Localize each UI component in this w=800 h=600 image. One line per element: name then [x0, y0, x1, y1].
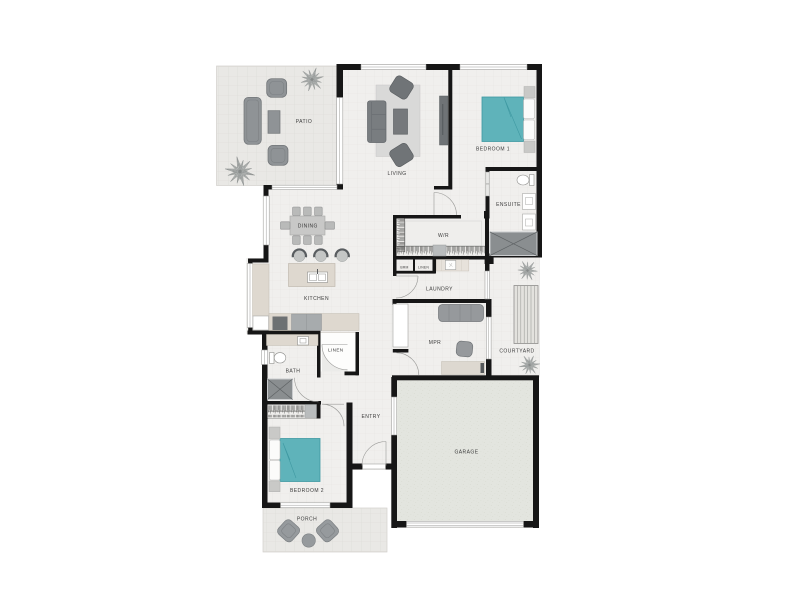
svg-text:BEDROOM 1: BEDROOM 1 [476, 147, 510, 153]
svg-text:LINEN: LINEN [418, 266, 429, 270]
svg-text:KITCHEN: KITCHEN [304, 296, 329, 302]
svg-text:PATIO: PATIO [296, 119, 313, 125]
svg-text:PORCH: PORCH [297, 517, 317, 523]
svg-text:BRM: BRM [400, 266, 408, 270]
svg-text:W/R: W/R [438, 233, 449, 239]
svg-text:ENSUITE: ENSUITE [496, 202, 521, 208]
svg-text:COURTYARD: COURTYARD [499, 349, 534, 355]
svg-text:GARAGE: GARAGE [454, 449, 478, 455]
svg-text:LINEN: LINEN [328, 348, 343, 353]
svg-text:BEDROOM 2: BEDROOM 2 [290, 488, 324, 494]
svg-text:MPR: MPR [429, 340, 441, 346]
svg-text:ENTRY: ENTRY [361, 414, 380, 420]
svg-text:DINING: DINING [298, 223, 318, 229]
svg-text:LIVING: LIVING [387, 171, 406, 177]
svg-text:LAUNDRY: LAUNDRY [426, 287, 453, 293]
svg-text:BATH: BATH [286, 369, 301, 375]
